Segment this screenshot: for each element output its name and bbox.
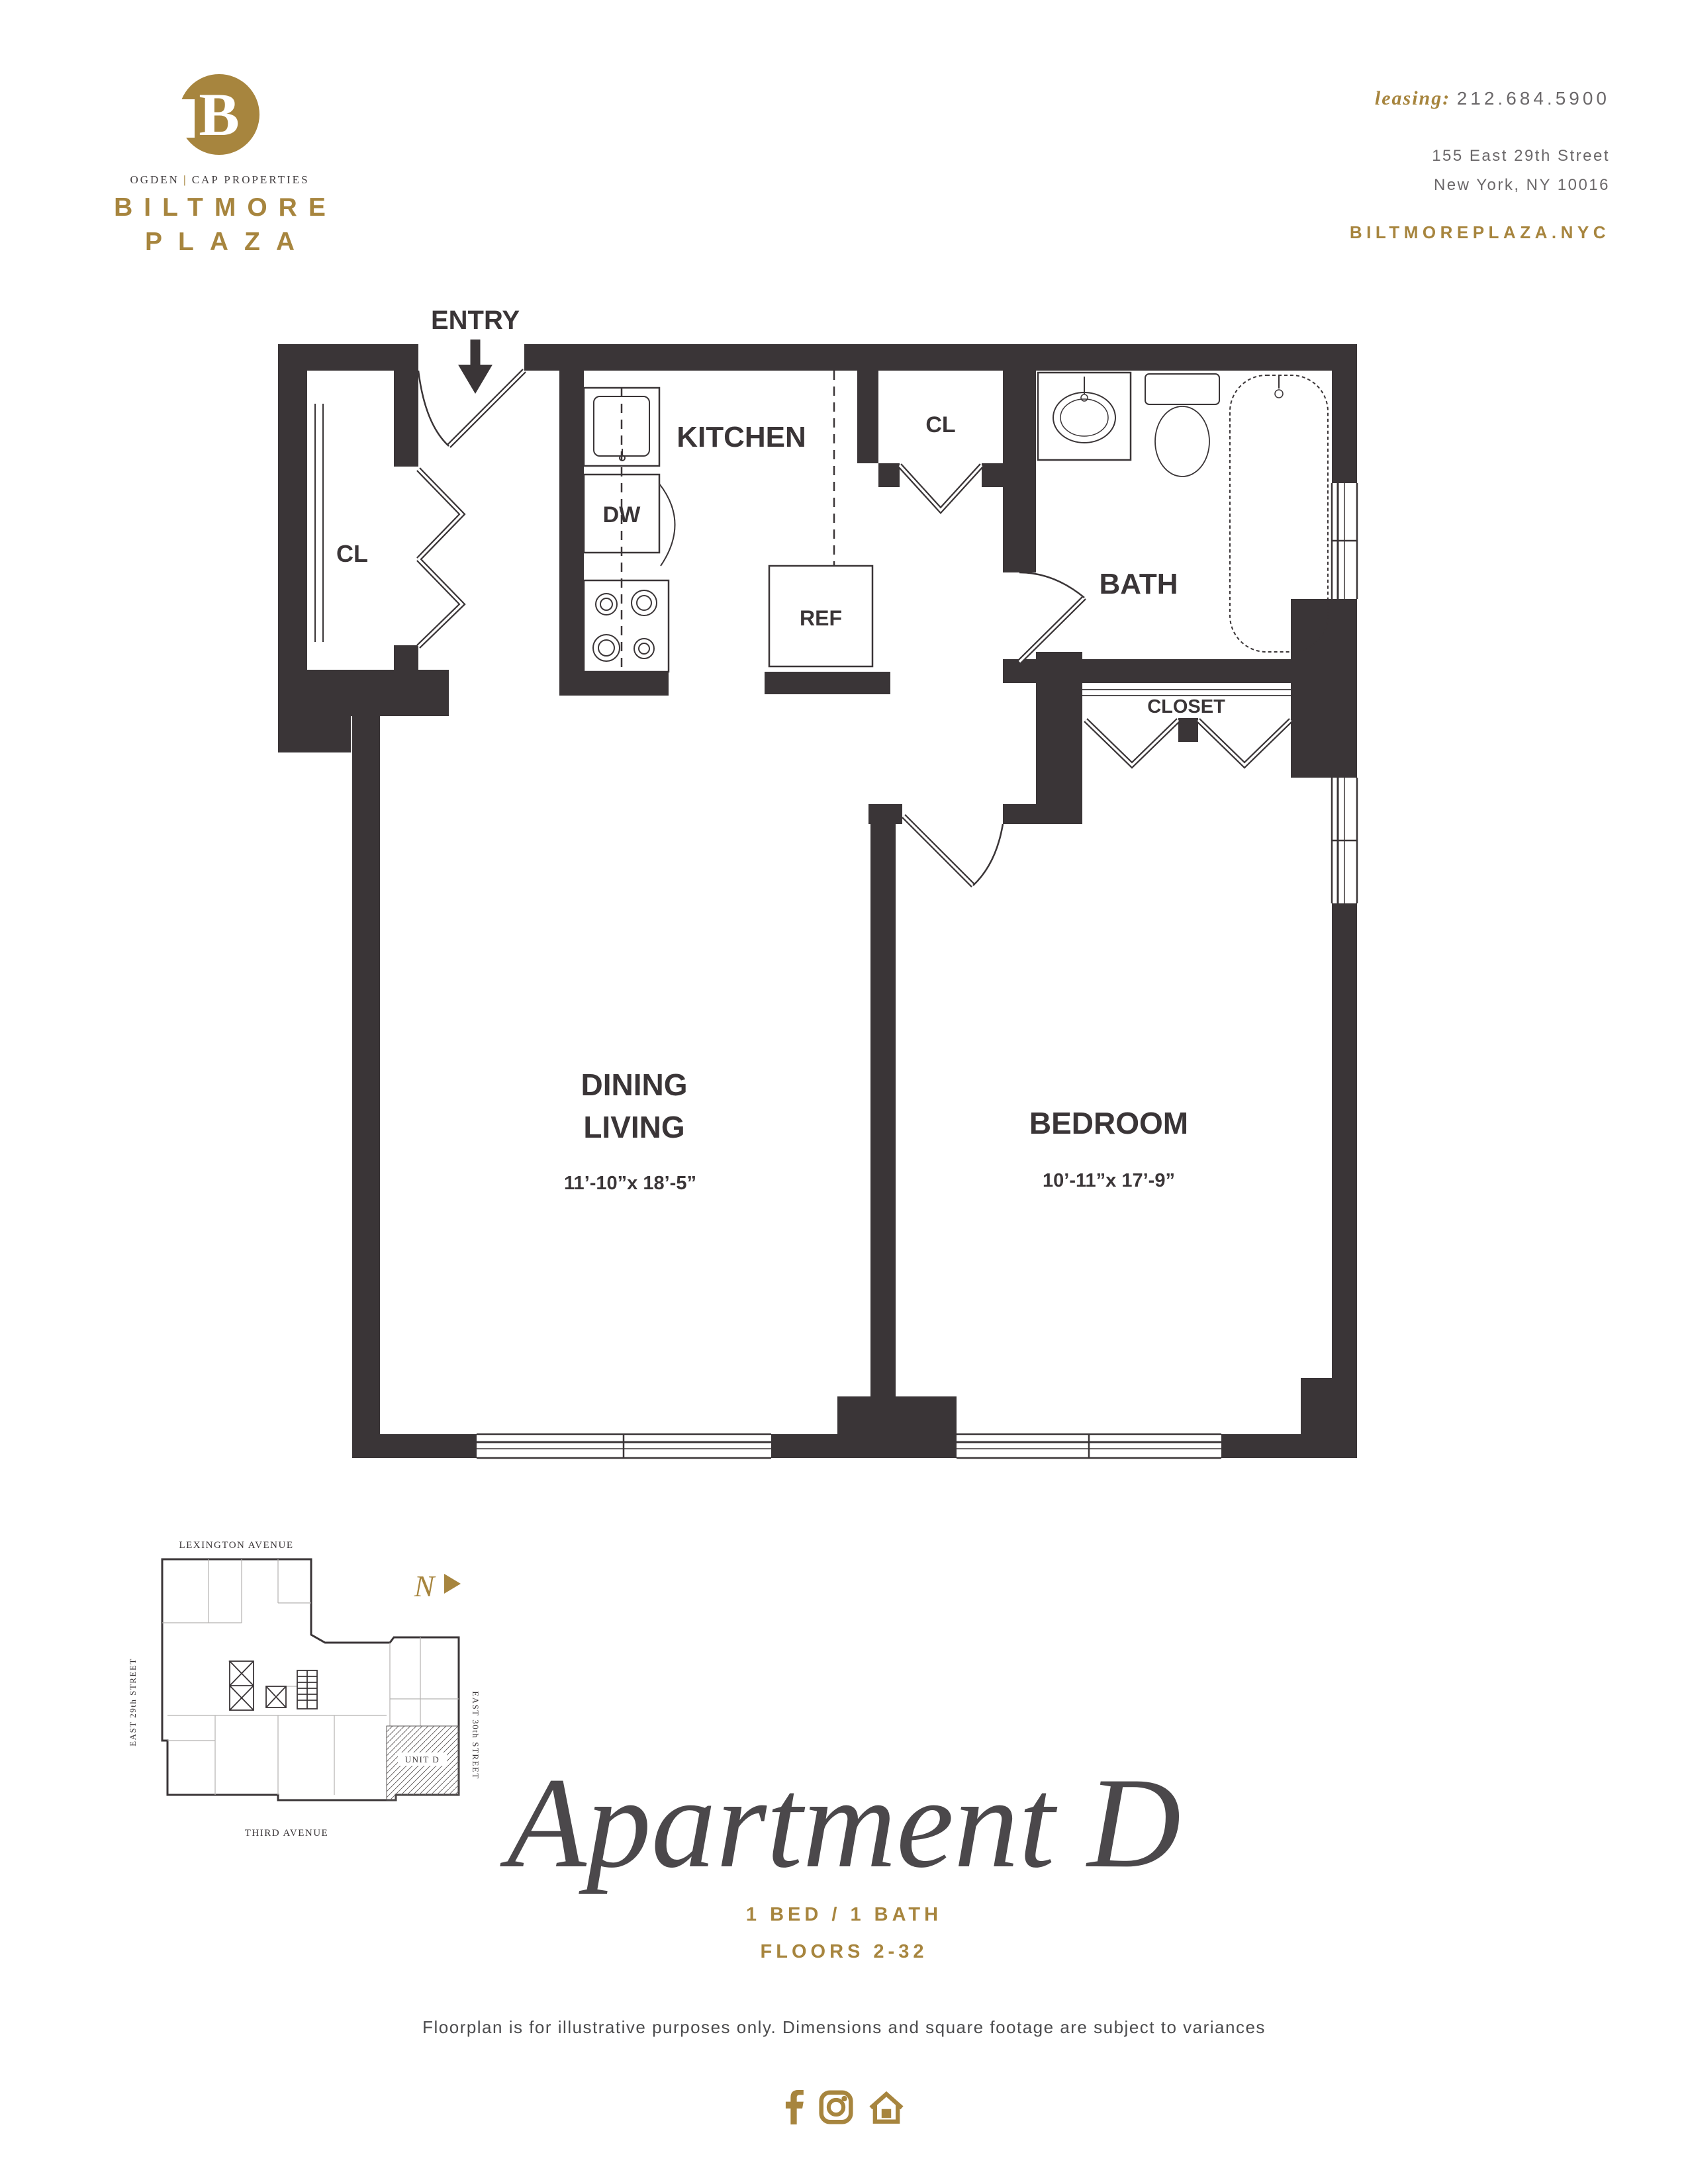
- instagram-icon: [819, 2090, 853, 2124]
- cl-left-label: CL: [336, 540, 368, 567]
- bath-fixtures: [1038, 373, 1328, 652]
- north-arrow-icon: [444, 1574, 461, 1594]
- dining-label-line1: DINING: [581, 1068, 688, 1102]
- leasing-label: leasing:: [1375, 87, 1450, 109]
- closet-label: CLOSET: [1147, 696, 1225, 717]
- cl-hall-label: CL: [925, 412, 955, 437]
- website-link: BILTMOREPLAZA.NYC: [993, 222, 1610, 243]
- bedroom-label: BEDROOM: [1029, 1106, 1188, 1140]
- bath-label: BATH: [1100, 568, 1178, 600]
- entry-label: ENTRY: [431, 306, 520, 335]
- facebook-icon: [783, 2090, 804, 2124]
- apartment-title: Apartment D: [0, 1749, 1688, 1897]
- tagline-right: CAP PROPERTIES: [192, 173, 310, 186]
- brand-name-line1: BILTMORE: [79, 193, 360, 222]
- ref-label: REF: [800, 606, 842, 630]
- address-line1: 155 East 29th Street: [993, 147, 1610, 165]
- north-label: N: [414, 1569, 436, 1603]
- dining-dimensions: 11’-10”x 18’-5”: [564, 1173, 696, 1194]
- bed-bath-spec: 1 BED / 1 BATH: [0, 1904, 1688, 1926]
- toilet-bowl: [1155, 406, 1209, 477]
- range-burners: [593, 590, 657, 661]
- windows: [315, 404, 1357, 1458]
- dw-label: DW: [603, 502, 641, 527]
- leasing-phone: 212.684.5900: [1457, 88, 1610, 109]
- closet-shelf-lines: [1082, 690, 1291, 696]
- tagline-separator: |: [179, 173, 192, 186]
- walls: [278, 344, 1357, 1458]
- range: [584, 580, 669, 672]
- logo-tagline: OGDEN|CAP PROPERTIES: [79, 173, 360, 187]
- toilet-tank: [1145, 374, 1219, 404]
- house-icon: [868, 2090, 905, 2124]
- street-label-left: EAST 29th STREET: [128, 1658, 138, 1747]
- tagline-left: OGDEN: [130, 173, 179, 186]
- brand-name-line2: PLAZA: [79, 228, 360, 257]
- kitchen-label: KITCHEN: [677, 421, 806, 453]
- north-compass: N: [414, 1569, 461, 1603]
- entry-arrow: [458, 340, 492, 394]
- leasing-line: leasing: 212.684.5900: [993, 87, 1610, 110]
- logo-initial: B: [179, 74, 259, 155]
- disclaimer-text: Floorplan is for illustrative purposes o…: [0, 2017, 1688, 2038]
- address-line2: New York, NY 10016: [993, 176, 1610, 195]
- doors: [418, 371, 1291, 886]
- street-label-top: LEXINGTON AVENUE: [179, 1540, 293, 1551]
- floors-range: FLOORS 2-32: [0, 1941, 1688, 1963]
- floorplan-drawing: ENTRY KITCHEN DW REF CL CL BATH CLOSET D…: [278, 295, 1380, 1496]
- brochure-page: { "colors": {"gold":"#a7853e","ink":"#3a…: [0, 0, 1688, 2184]
- bedroom-dimensions: 10’-11”x 17’-9”: [1043, 1170, 1175, 1191]
- social-icons-row: [0, 2090, 1688, 2124]
- dining-label-line2: LIVING: [583, 1110, 684, 1144]
